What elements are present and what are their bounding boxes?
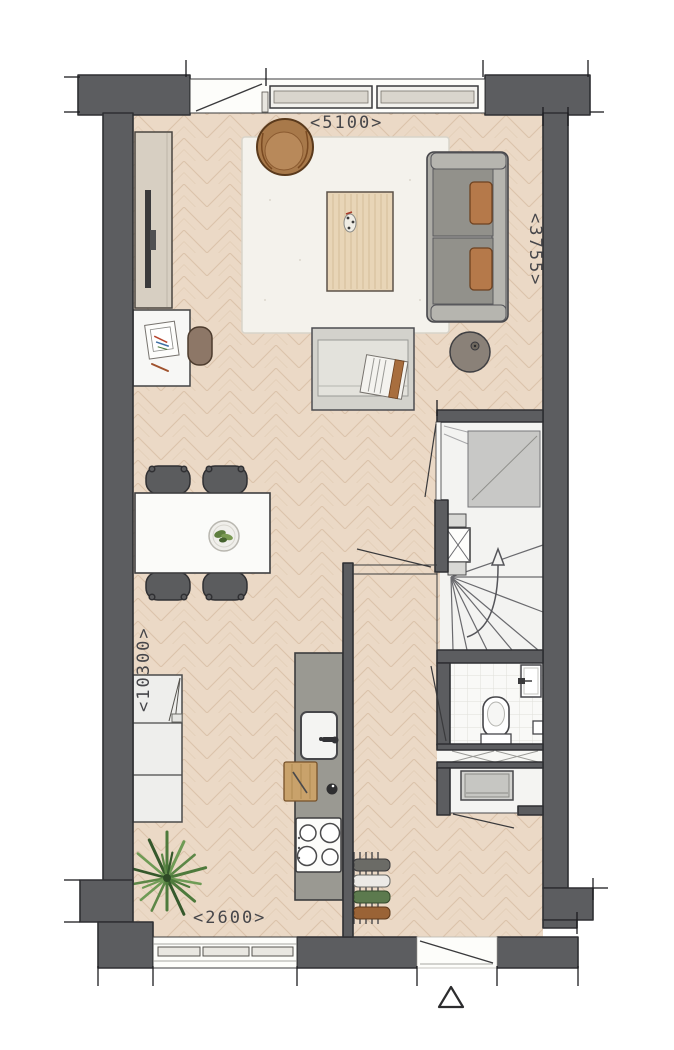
wall-shaft-top [437,744,543,750]
wall-stair-top [437,410,543,422]
entrance-triangle-marker [439,987,463,1007]
wall-stair-toilet [437,650,543,663]
wall-bottom-right [497,937,578,968]
dim-left: <10300> [134,626,154,712]
desk [133,310,190,386]
cutting-board [284,762,317,801]
wall-meter-stub [435,500,448,572]
armchair [257,119,313,175]
toilet-paper-holder [533,721,543,734]
dim-top: <5100> [310,113,383,133]
tv-cabinet [135,132,172,308]
pillow [360,355,408,400]
dim-bottom: <2600> [193,908,266,928]
daybed-bench [312,328,414,410]
wall-storage-stub [518,806,543,815]
wall-kitchen [343,563,353,937]
wall-shaft-bottom [437,762,543,768]
sofa [427,152,508,322]
wall-bottom-left-block [80,880,133,922]
side-table [450,332,490,372]
desk-chair [188,327,212,365]
cooktop [296,818,341,872]
papers [145,321,179,359]
coffee-table [327,192,393,291]
toilet-bowl [481,697,511,746]
floor-plan-canvas: <5100> <3755> <10300> <2600> [0,0,674,1050]
wall-left [103,113,133,882]
floor-plan-drawing: <5100> <3755> <10300> <2600> [0,0,674,1050]
wall-storage-left [437,768,450,815]
top-window-2 [377,86,478,108]
timer-knob [327,784,338,795]
top-window-1 [270,86,372,108]
washing-machine [461,771,513,800]
fruit-bowl [209,521,239,551]
wall-right-step [543,888,593,920]
wall-top-right-block [485,75,590,115]
meter-cupboard [446,514,470,575]
bottom-window [153,937,297,968]
front-door [417,937,497,968]
wall-bottom-mid [297,937,417,968]
dim-right: <3755> [525,213,545,286]
wall-right-step-2 [543,920,577,928]
wall-right [543,113,568,888]
wall-bottom-left-corner [98,922,153,968]
kitchen-sink [301,712,337,759]
hand-basin [518,665,541,697]
wall-top-left-block [78,75,190,115]
dining-table [135,493,270,573]
